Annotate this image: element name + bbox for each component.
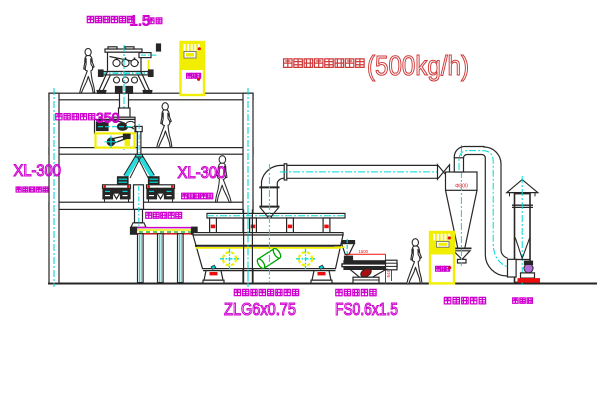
svg-text:XL-300: XL-300 (14, 161, 62, 180)
svg-text:1500: 1500 (359, 249, 369, 254)
svg-text:1.5: 1.5 (130, 13, 151, 30)
svg-text:ZLG6x0.75: ZLG6x0.75 (224, 299, 296, 319)
svg-text:XL-300: XL-300 (178, 163, 226, 182)
svg-text:(500kg/h): (500kg/h) (367, 50, 469, 81)
svg-text:350: 350 (96, 110, 120, 126)
svg-text:FS0.6x1.5: FS0.6x1.5 (335, 299, 398, 319)
